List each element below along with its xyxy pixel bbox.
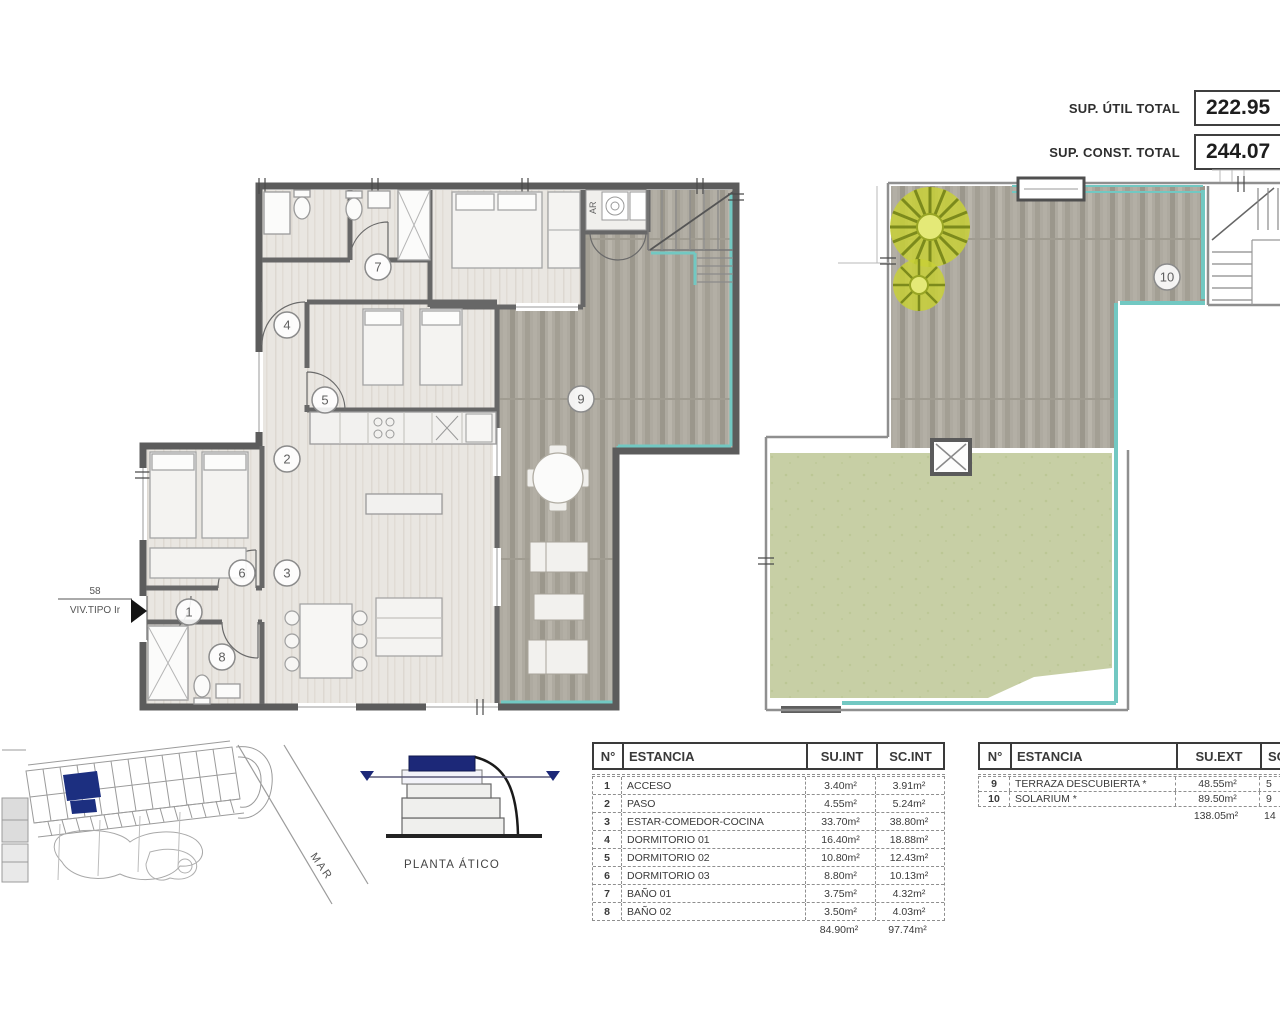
laundry-closet: AR: [586, 190, 646, 230]
room-badge-9: 9: [568, 386, 594, 412]
section-caption: PLANTA ÁTICO: [404, 858, 500, 871]
skylight-box-icon: [932, 440, 970, 474]
terrace-furniture: [527, 445, 589, 674]
room-badge-8: 8: [209, 644, 235, 670]
sofa: [376, 598, 442, 656]
col-sc: SC.EXT: [1260, 744, 1280, 768]
floor-plan-apartment: AR 1 2 3 4 5 6 7 8 9: [58, 178, 744, 715]
section-diagram: PLANTA ÁTICO: [360, 756, 560, 871]
room-badge-3: 3: [274, 560, 300, 586]
section-arrow-left-icon: [360, 771, 374, 781]
room-badge-2: 2: [274, 446, 300, 472]
col-room: ESTANCIA: [622, 744, 806, 768]
svg-text:2: 2: [283, 452, 290, 467]
col-num: N°: [594, 744, 622, 768]
svg-text:VIV.TIPO Ir: VIV.TIPO Ir: [70, 605, 121, 616]
svg-text:6: 6: [238, 566, 245, 581]
interior-table-totals: 84.90m² 97.74m²: [592, 921, 945, 939]
room-badge-6: 6: [229, 560, 255, 586]
floor-plan-solarium: 10: [758, 170, 1280, 713]
exterior-areas-table: N° ESTANCIA SU.EXT SC.EXT 9TERRAZA DESCU…: [978, 742, 1280, 825]
room-badge-10: 10: [1154, 264, 1180, 290]
exterior-table-body: 9TERRAZA DESCUBIERTA *48.55m²5 10SOLARIU…: [978, 776, 1280, 807]
table-row: 10SOLARIUM *89.50m²9: [979, 791, 1280, 806]
svg-text:9: 9: [577, 392, 584, 407]
svg-text:58: 58: [89, 586, 101, 597]
room-badge-4: 4: [274, 312, 300, 338]
palm-tree-icon: [890, 187, 970, 267]
sea-label: MAR: [308, 851, 335, 883]
site-plan: MAR: [2, 741, 368, 904]
interior-areas-table: N° ESTANCIA SU.INT SC.INT 1ACCESO3.40m²3…: [592, 742, 945, 939]
skylight-icon: [1018, 178, 1084, 200]
table-row: 2PASO4.55m²5.24m²: [593, 794, 944, 812]
lawn-area: [770, 453, 1112, 698]
section-arrow-right-icon: [546, 771, 560, 781]
exterior-table-totals: 138.05m² 14: [978, 807, 1280, 825]
svg-text:1: 1: [185, 605, 192, 620]
col-num: N°: [980, 744, 1010, 768]
svg-text:4: 4: [283, 318, 290, 333]
highlighted-floor: [409, 756, 475, 771]
table-row: 9TERRAZA DESCUBIERTA *48.55m²5: [979, 777, 1280, 791]
svg-text:8: 8: [218, 650, 225, 665]
col-sc: SC.INT: [876, 744, 943, 768]
col-room: ESTANCIA: [1010, 744, 1176, 768]
svg-text:10: 10: [1160, 270, 1174, 285]
col-su: SU.INT: [806, 744, 876, 768]
table-row: 7BAÑO 013.75m²4.32m²: [593, 884, 944, 902]
table-row: 4DORMITORIO 0116.40m²18.88m²: [593, 830, 944, 848]
table-row: 3ESTAR-COMEDOR-COCINA33.70m²38.80m²: [593, 812, 944, 830]
unit-type-label: 58 VIV.TIPO Ir: [58, 586, 132, 616]
table-row: 5DORMITORIO 0210.80m²12.43m²: [593, 848, 944, 866]
closet-label: AR: [588, 201, 598, 214]
svg-text:5: 5: [321, 393, 328, 408]
svg-text:7: 7: [374, 260, 381, 275]
room-badge-7: 7: [365, 254, 391, 280]
interior-table-body: 1ACCESO3.40m²3.91m² 2PASO4.55m²5.24m² 3E…: [592, 776, 945, 921]
palm-tree-small-icon: [893, 259, 945, 311]
room-badge-1: 1: [176, 599, 202, 625]
table-row: 1ACCESO3.40m²3.91m²: [593, 777, 944, 794]
table-row: 6DORMITORIO 038.80m²10.13m²: [593, 866, 944, 884]
table-row: 8BAÑO 023.50m²4.03m²: [593, 902, 944, 920]
dining-set: [285, 604, 367, 678]
room-badge-5: 5: [312, 387, 338, 413]
floorplan-sheet: SUP. ÚTIL TOTAL 222.95 SUP. CONST. TOTAL…: [0, 0, 1280, 1024]
exterior-table-header: N° ESTANCIA SU.EXT SC.EXT: [978, 742, 1280, 770]
svg-text:3: 3: [283, 566, 290, 581]
bedroom1-furniture: [452, 192, 580, 268]
solarium-stairs-icon: [1212, 188, 1280, 305]
interior-table-header: N° ESTANCIA SU.INT SC.INT: [592, 742, 945, 770]
col-su: SU.EXT: [1176, 744, 1260, 768]
highlighted-unit: [63, 771, 101, 801]
